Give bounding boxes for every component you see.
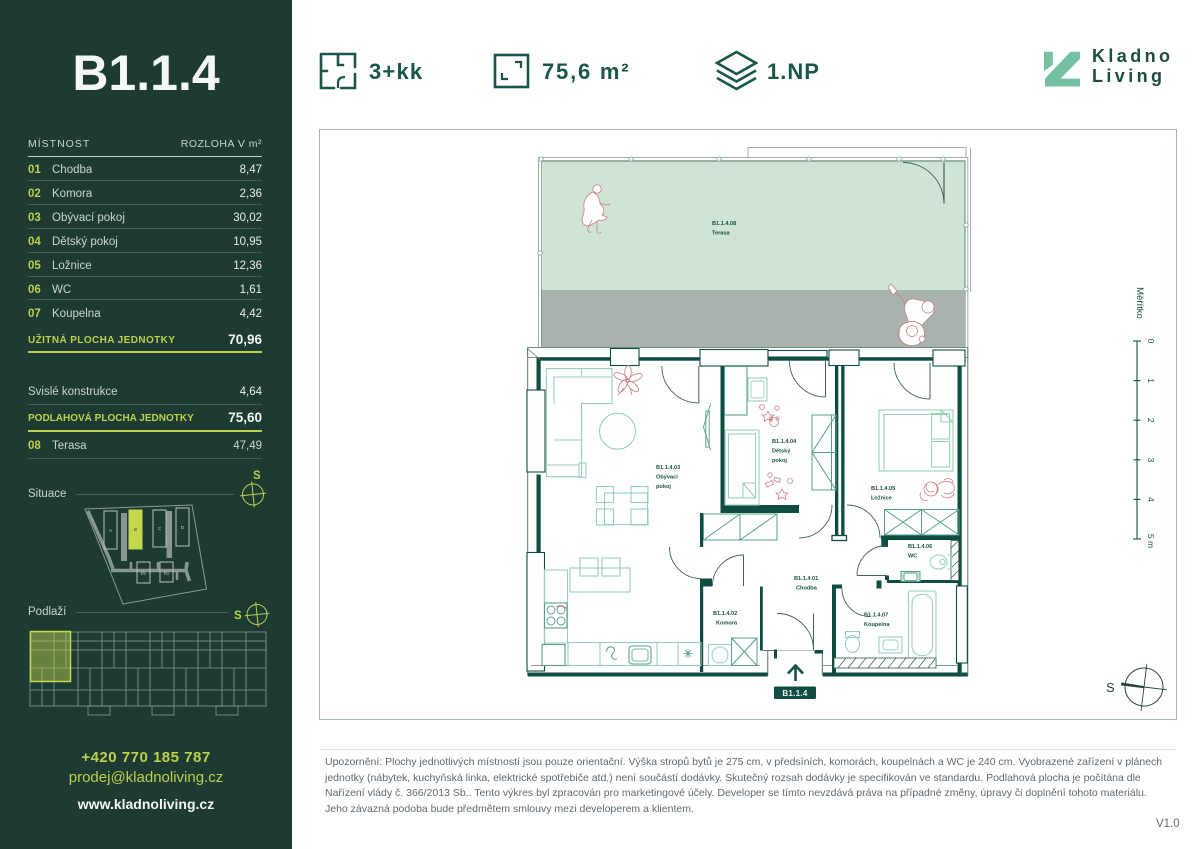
svg-text:pokoj: pokoj [772,458,787,464]
svg-text:B1.1.4.03: B1.1.4.03 [656,465,680,471]
svg-text:3: 3 [1146,457,1156,462]
svg-text:B: B [134,527,137,532]
svg-text:B1.1.4.04: B1.1.4.04 [772,439,797,445]
svg-text:WC: WC [908,554,917,560]
svg-text:Obývací: Obývací [656,475,678,481]
svg-text:B1: B1 [164,571,170,576]
svg-text:C: C [158,526,162,531]
svg-text:B1.1.4.08: B1.1.4.08 [712,221,736,227]
svg-text:A: A [109,528,112,533]
svg-text:0: 0 [1146,339,1156,344]
svg-text:B1.1.4.07: B1.1.4.07 [864,613,888,619]
svg-text:Koupelna: Koupelna [864,622,890,628]
svg-text:B2: B2 [141,571,147,576]
svg-text:B1.1.4.05: B1.1.4.05 [871,486,895,492]
svg-text:Dětský: Dětský [772,449,791,455]
svg-text:1: 1 [1146,378,1156,383]
svg-text:S: S [234,610,242,622]
svg-text:B1.1.4.06: B1.1.4.06 [908,544,932,550]
svg-text:Terasa: Terasa [712,231,731,237]
svg-text:2: 2 [1146,418,1156,423]
svg-text:S: S [1106,680,1115,695]
svg-text:B1.1.4: B1.1.4 [782,689,808,698]
svg-text:S: S [253,470,261,482]
svg-text:4: 4 [1146,497,1156,502]
svg-text:Měřítko: Měřítko [1134,287,1145,319]
svg-text:Chodba: Chodba [796,586,818,592]
svg-text:D: D [181,525,185,530]
svg-text:B1.1.4.01: B1.1.4.01 [794,576,818,582]
svg-text:Komora: Komora [716,621,738,627]
svg-text:B1.1.4.02: B1.1.4.02 [713,611,737,617]
svg-text:5 m: 5 m [1146,534,1156,548]
svg-text:pokoj: pokoj [656,484,671,490]
svg-text:Ložnice: Ložnice [871,496,892,502]
